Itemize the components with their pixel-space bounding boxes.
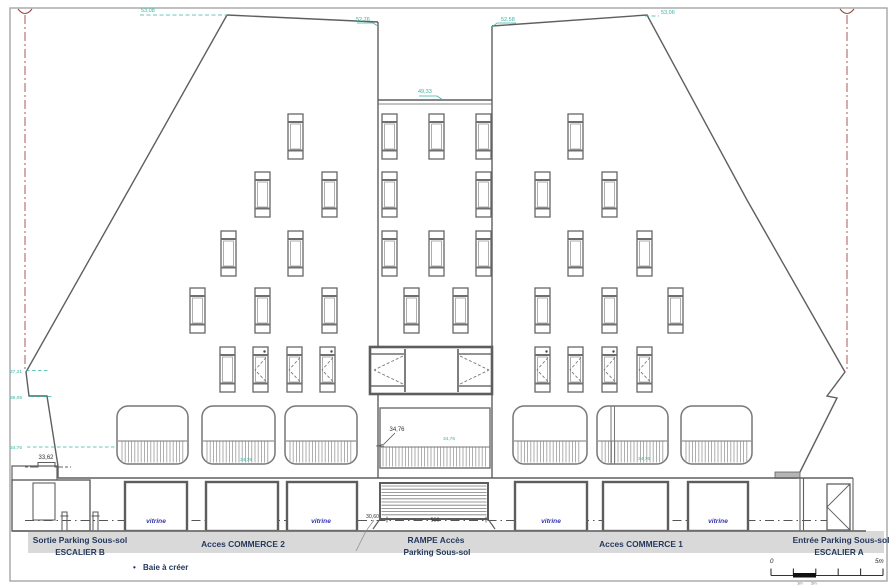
level-notch-right: 52,58 — [501, 17, 515, 23]
elevation-drawing-sheet: 0 5m 1m 2m 53,08 52,76 52,58 53,06 49,33… — [0, 0, 896, 588]
scale-5m-label: 5m — [875, 558, 884, 565]
window — [637, 231, 652, 276]
label-rampe-acces: RAMPE Accès — [408, 535, 465, 545]
window — [568, 231, 583, 276]
window — [382, 172, 397, 217]
window — [322, 172, 337, 217]
center-loggia — [370, 347, 492, 394]
level-roof-left: 53,08 — [141, 8, 155, 14]
window — [322, 288, 337, 333]
window — [288, 114, 303, 159]
door-commerce-2 — [206, 482, 278, 531]
baie-a-creer-dot — [545, 350, 547, 352]
window — [220, 347, 235, 392]
window — [255, 288, 270, 333]
label-sortie-parking: Sortie Parking Sous-sol — [33, 535, 127, 545]
label-acces-commerce-2: Acces COMMERCE 2 — [201, 539, 285, 549]
level-roof-right: 53,06 — [661, 10, 675, 16]
vitrine-label-2: vitrine — [311, 518, 331, 525]
window — [288, 231, 303, 276]
window — [221, 231, 236, 276]
balcony — [597, 406, 668, 464]
legend-bullet: • — [133, 563, 136, 572]
stair-a-structure — [775, 472, 853, 531]
window — [602, 288, 617, 333]
legend-baie-a-creer: • Baie à créer — [133, 563, 188, 572]
scale-sub2-label: 2m — [811, 581, 817, 586]
window — [255, 172, 270, 217]
balcony — [513, 406, 587, 464]
scale-zero-label: 0 — [770, 558, 774, 565]
window — [637, 347, 652, 392]
axis-centerline-left — [18, 9, 32, 372]
window — [429, 114, 444, 159]
axis-centerline-right — [840, 9, 854, 372]
window — [535, 172, 550, 217]
window — [253, 347, 268, 392]
label-rampe-parking: Parking Sous-sol — [404, 548, 471, 557]
window — [320, 347, 335, 392]
window — [404, 288, 419, 333]
baie-a-creer-dot — [330, 350, 332, 352]
balcony-center — [380, 408, 490, 468]
balcony — [285, 406, 357, 464]
legend-label: Baie à créer — [143, 563, 188, 572]
window — [668, 288, 683, 333]
level-balcony-left: 34,76 — [240, 457, 252, 463]
door-commerce-1 — [603, 482, 668, 531]
vitrine-label-1: vitrine — [146, 518, 166, 525]
baie-a-creer-dot — [263, 350, 265, 352]
window — [476, 114, 491, 159]
window — [568, 114, 583, 159]
label-escalier-b: ESCALIER B — [55, 548, 105, 557]
level-notch-left: 52,76 — [356, 17, 370, 23]
level-balcony-center: 34,76 — [443, 436, 455, 442]
window — [287, 347, 302, 392]
balcony — [117, 406, 188, 464]
label-entree-parking: Entrée Parking Sous-sol — [793, 535, 890, 545]
label-acces-commerce-1: Acces COMMERCE 1 — [599, 539, 683, 549]
vitrine-label-4: vitrine — [708, 518, 728, 525]
balcony — [202, 406, 275, 464]
window — [535, 347, 550, 392]
baie-a-creer-dot — [612, 350, 614, 352]
window — [602, 347, 617, 392]
dim-33-62: 33,62 — [38, 455, 54, 461]
window — [453, 288, 468, 333]
window — [382, 231, 397, 276]
window — [476, 172, 491, 217]
level-leaders — [26, 15, 659, 447]
level-edge-lower: 34,76 — [10, 445, 22, 451]
entree-parking-door — [827, 484, 850, 530]
dim-500: 500 — [431, 518, 440, 524]
window — [429, 231, 444, 276]
level-edge-mid: 36,05 — [10, 395, 22, 401]
window — [476, 231, 491, 276]
window — [568, 347, 583, 392]
level-edge-upper: 37,21 — [10, 369, 22, 375]
generated-drawing-layer — [117, 114, 752, 530]
level-balcony-right: 34,76 — [638, 456, 650, 462]
dim-30-60: 30,60 — [366, 514, 379, 520]
elevation-svg: 0 5m 1m 2m 53,08 52,76 52,58 53,06 49,33… — [0, 0, 896, 588]
balcony — [681, 406, 752, 464]
label-escalier-a: ESCALIER A — [814, 548, 863, 557]
window — [602, 172, 617, 217]
vitrine-label-3: vitrine — [541, 518, 561, 525]
dim-34-76: 34,76 — [389, 427, 405, 433]
scale-sub1-label: 1m — [797, 581, 803, 586]
window — [190, 288, 205, 333]
level-center-parapet: 49,33 — [418, 89, 432, 95]
window — [535, 288, 550, 333]
window — [382, 114, 397, 159]
